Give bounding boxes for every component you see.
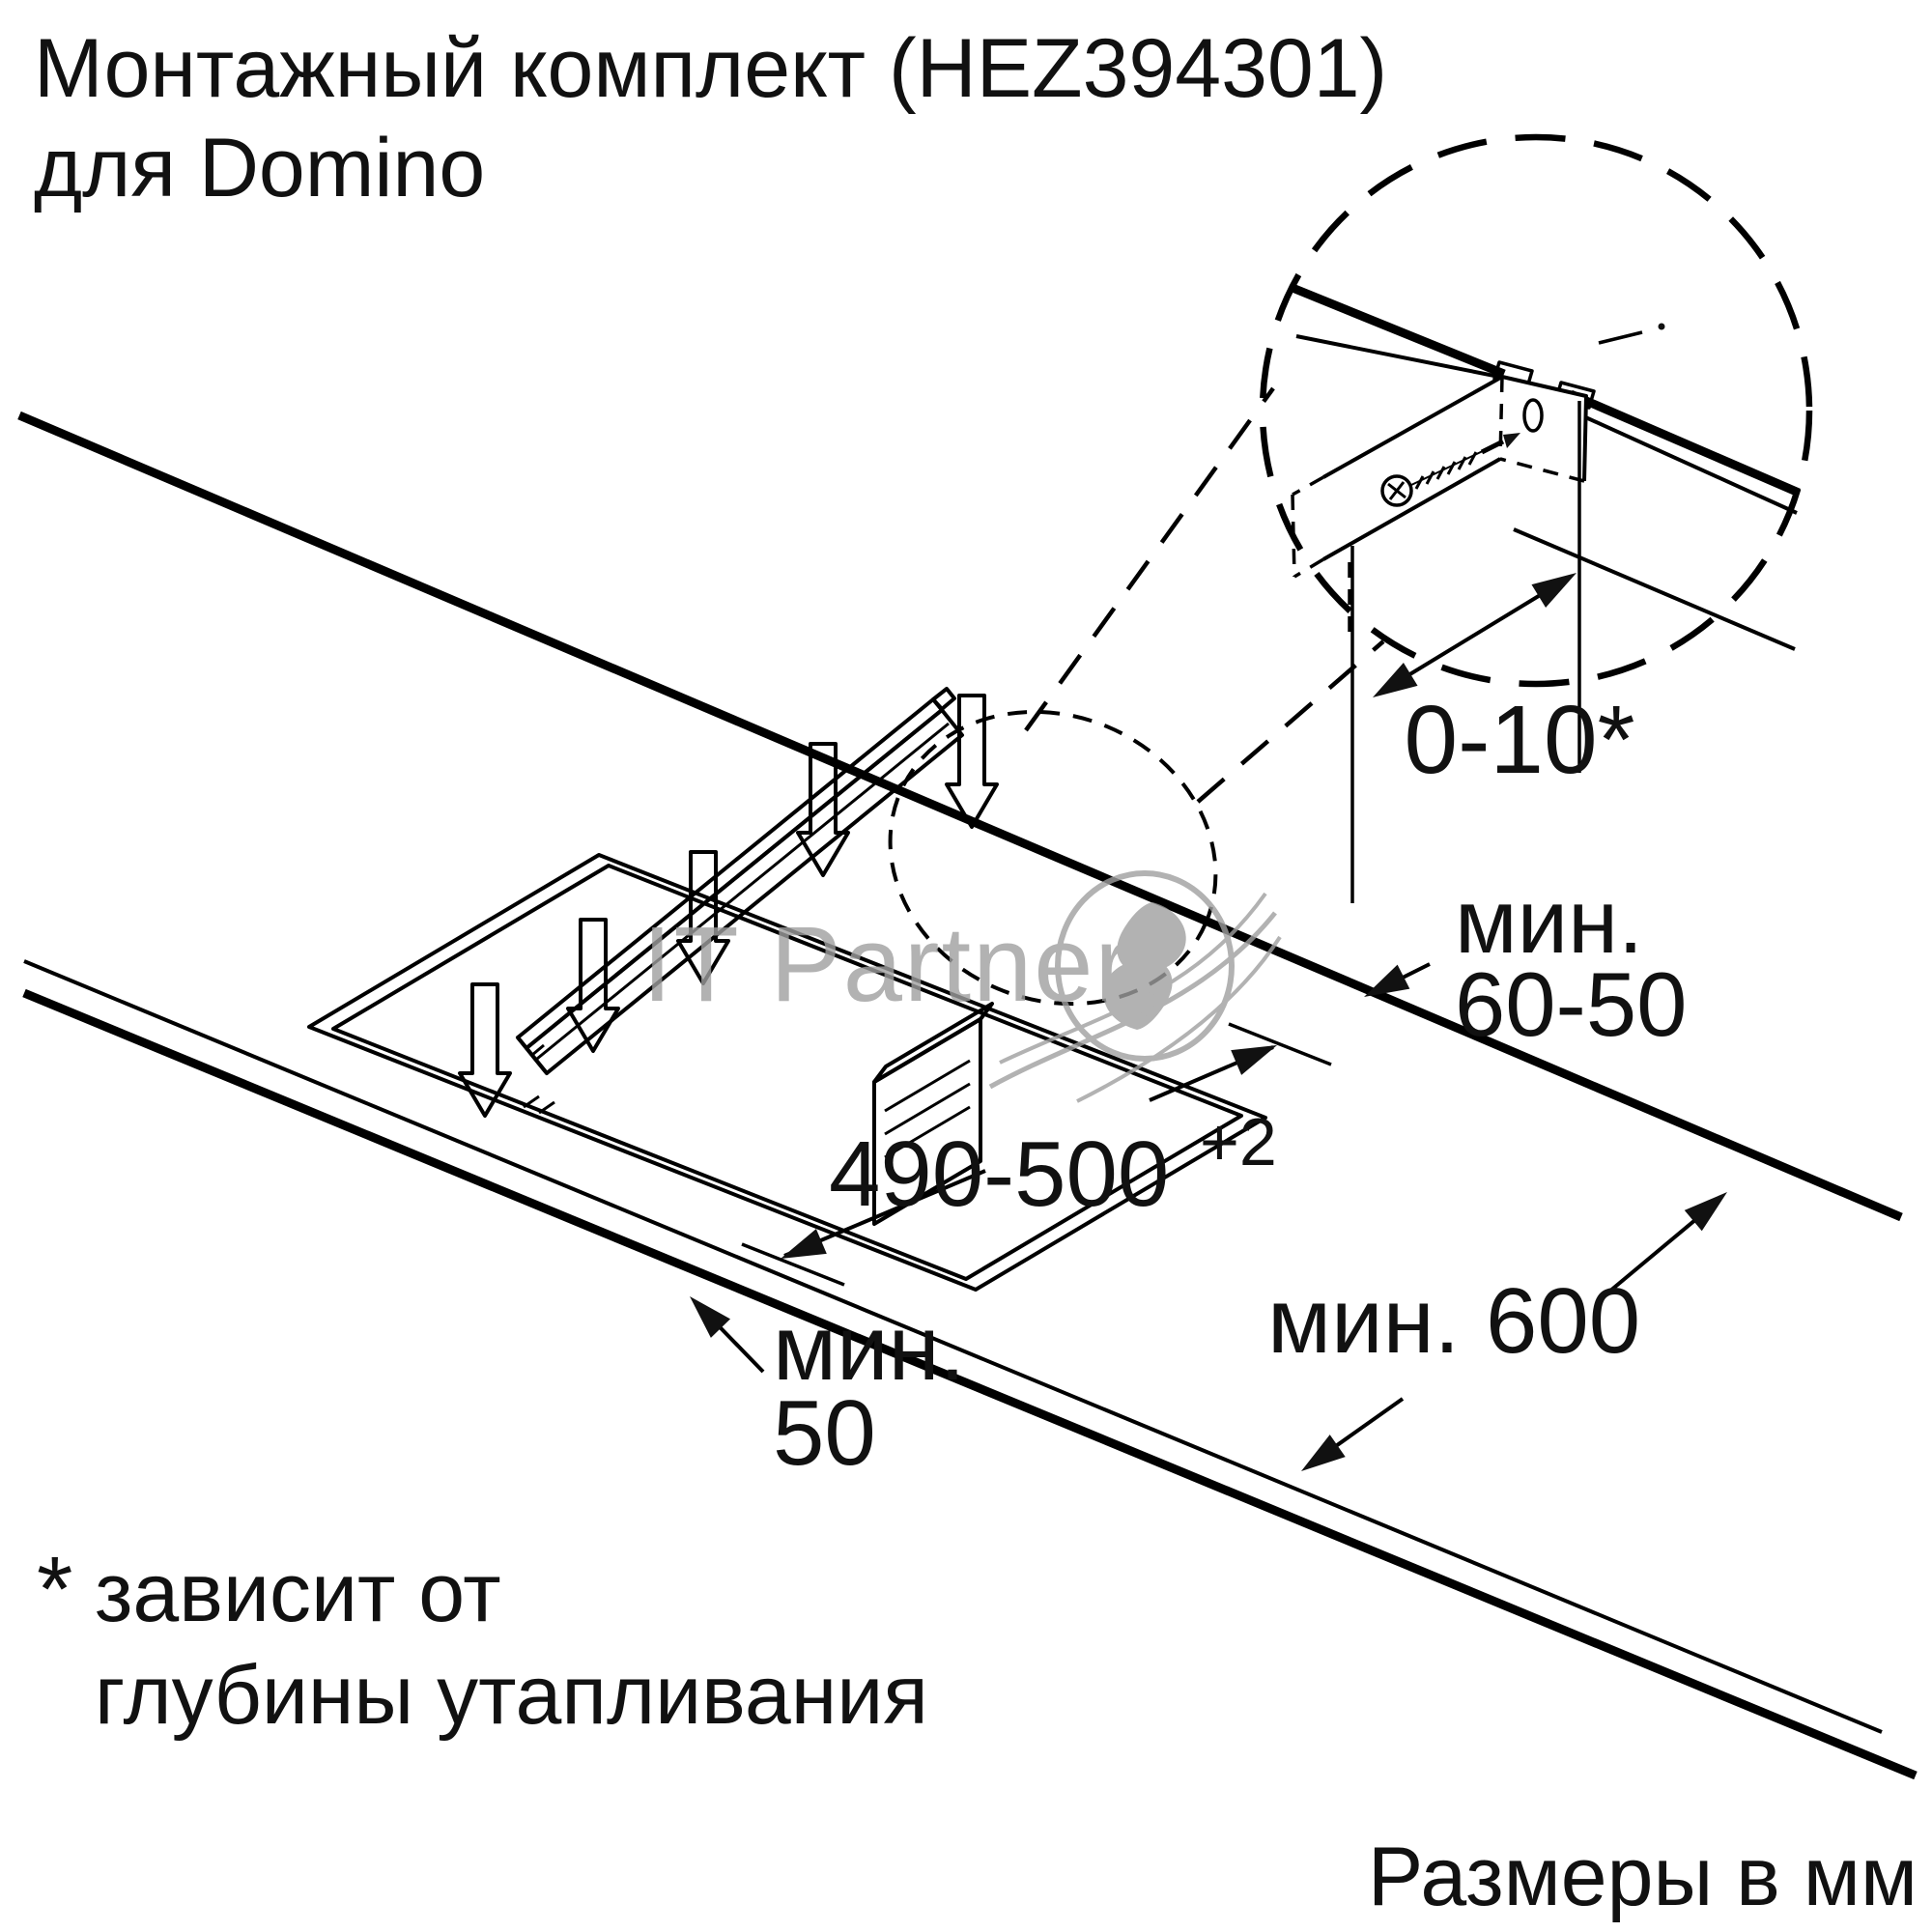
detail-right-worktop-edge [1571, 394, 1799, 493]
detail-right-worktop-underedge [1581, 415, 1797, 513]
footnote-line1: зависит от [95, 1547, 501, 1639]
callout-leader-lines [1026, 388, 1383, 802]
footnote: * зависит от глубины утапливания [37, 1538, 928, 1742]
centerline-dot [1659, 324, 1665, 330]
dimension-label: 60-50 [1455, 953, 1687, 1055]
title-block: Монтажный комплект (HEZ394301) для Domin… [34, 22, 1387, 214]
detail-view: 0-10* [1293, 288, 1799, 903]
dimension-back-strip: мин. 60-50 [1358, 870, 1688, 1055]
footnote-marker: * [37, 1538, 72, 1641]
dimension-arrowhead [1231, 1033, 1282, 1075]
dimension-arrowhead [776, 1229, 827, 1271]
dimension-label: 50 [773, 1381, 876, 1485]
dimension-label: 490-500 [829, 1122, 1169, 1226]
down-arrow-icon [568, 920, 618, 1051]
dimension-arrowhead [1293, 1435, 1346, 1482]
dimension-label: 0-10* [1404, 686, 1634, 794]
dimension-tolerance: +2 [1200, 1104, 1277, 1179]
units-note: Размеры в мм [1368, 1831, 1918, 1923]
dimension-arrowhead [1531, 561, 1583, 608]
footnote-line2: глубины утапливания [95, 1649, 928, 1742]
down-arrow-icon [947, 696, 997, 827]
dimension-label: мин. 600 [1267, 1269, 1640, 1373]
page-title-line1: Монтажный комплект (HEZ394301) [34, 22, 1387, 115]
technical-diagram: мин. 60-50 490-500 +2 мин. 50 мин. 600 [0, 0, 1932, 1932]
worktop-back-edge [19, 415, 1901, 1217]
detail-left-worktop-edge [1293, 288, 1504, 374]
centerline-dash [1599, 332, 1642, 343]
dimension-front-strip: мин. 50 [680, 1287, 965, 1485]
installation-diagram-page: мин. 60-50 490-500 +2 мин. 50 мин. 600 [0, 0, 1932, 1932]
dimension-worktop-depth: мин. 600 [1267, 1181, 1736, 1482]
page-title-line2: для Domino [34, 122, 485, 214]
